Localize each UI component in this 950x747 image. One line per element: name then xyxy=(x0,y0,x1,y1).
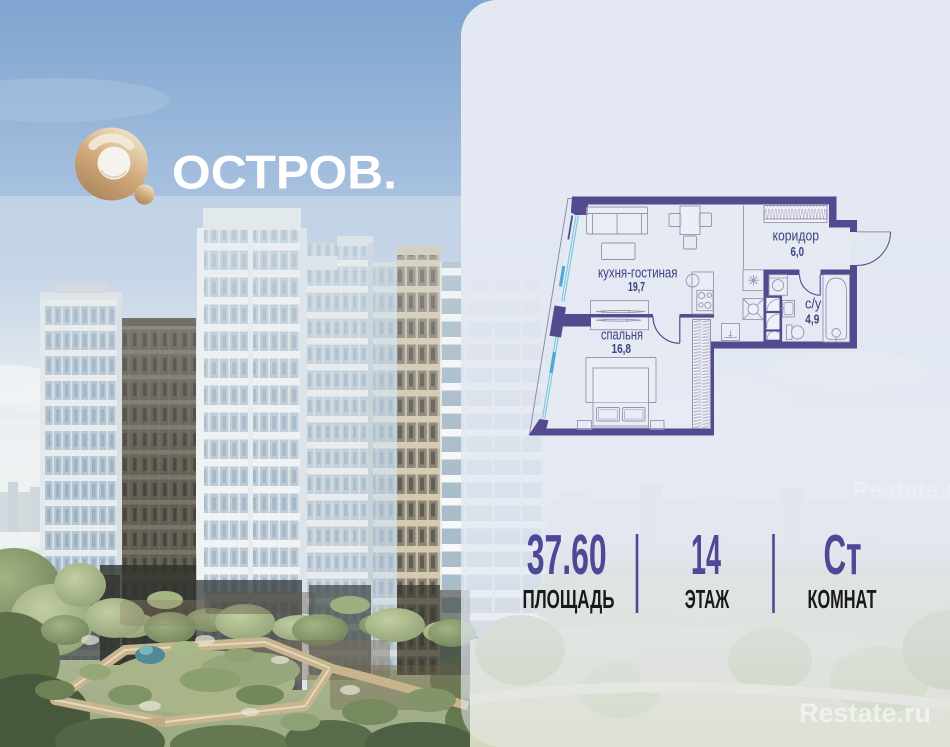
svg-text:ЭТАЖ: ЭТАЖ xyxy=(685,584,730,614)
svg-text:КОМНАТ: КОМНАТ xyxy=(808,584,877,614)
svg-text:37.60: 37.60 xyxy=(527,523,607,587)
svg-text:ПЛОЩАДЬ: ПЛОЩАДЬ xyxy=(523,584,615,614)
svg-text:Ст: Ст xyxy=(824,523,862,587)
svg-text:14: 14 xyxy=(691,523,721,587)
